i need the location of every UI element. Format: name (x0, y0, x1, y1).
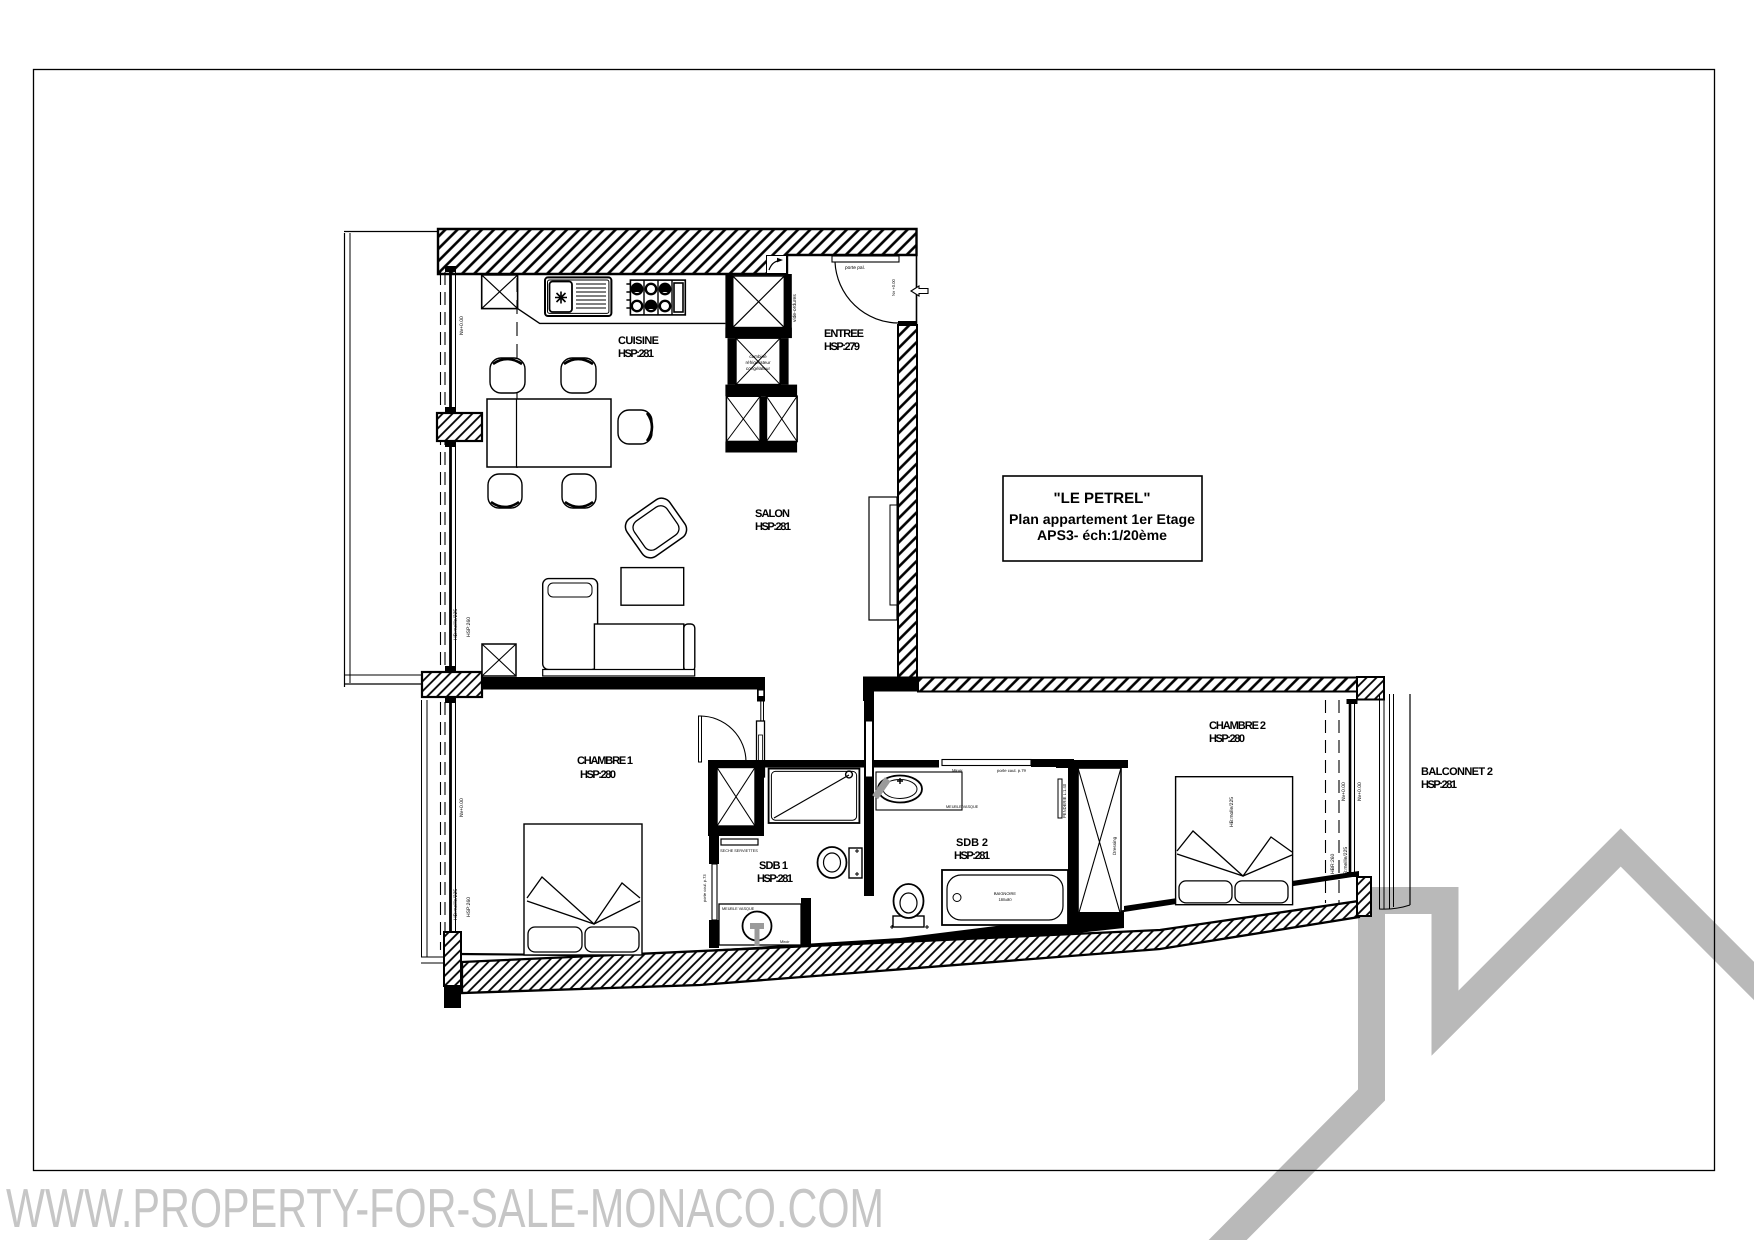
svg-text:Nv+0.00: Nv+0.00 (1357, 782, 1363, 801)
svg-text:SDB 2: SDB 2 (956, 837, 988, 849)
svg-text:Nv+0.00: Nv+0.00 (459, 316, 465, 335)
svg-text:HSP:280: HSP:280 (580, 769, 616, 781)
svg-text:ENTREE: ENTREE (824, 328, 864, 340)
svg-text:SALON: SALON (755, 508, 790, 520)
svg-text:porte pal.: porte pal. (845, 265, 865, 271)
svg-text:BALCONNET 2: BALCONNET 2 (1421, 766, 1493, 778)
svg-text:CUISINE: CUISINE (618, 335, 659, 347)
svg-text:HSP:281: HSP:281 (954, 850, 990, 862)
svg-text:HBR:260: HBR:260 (1330, 853, 1336, 874)
svg-text:PENDERIE L:1.40: PENDERIE L:1.40 (1062, 783, 1067, 818)
svg-text:HSP:281: HSP:281 (1421, 779, 1457, 791)
svg-text:HB:molle/225: HB:molle/225 (1229, 797, 1235, 827)
svg-text:porte coul. p.73: porte coul. p.73 (702, 874, 707, 902)
svg-text:"LE PETREL": "LE PETREL" (1054, 490, 1151, 507)
svg-text:Dressing: Dressing (1112, 836, 1117, 855)
svg-text:HB:meille/225: HB:meille/225 (453, 889, 459, 920)
svg-text:Nv +0.00: Nv +0.00 (891, 278, 896, 296)
svg-text:porte coul. p.79: porte coul. p.79 (997, 768, 1027, 773)
svg-text:WWW.PROPERTY-FOR-SALE-MONACO.C: WWW.PROPERTY-FOR-SALE-MONACO.COM (6, 1177, 884, 1239)
svg-text:Plan appartement 1er Etage: Plan appartement 1er Etage (1009, 511, 1195, 527)
svg-text:HSP:281: HSP:281 (757, 873, 793, 885)
svg-text:HSP:280: HSP:280 (1209, 733, 1245, 745)
svg-text:réfrigérateur: réfrigérateur (745, 360, 770, 365)
svg-text:SDB 1: SDB 1 (759, 860, 788, 872)
svg-text:HSP:281: HSP:281 (755, 521, 791, 533)
svg-text:MEUBLE VASQUE: MEUBLE VASQUE (946, 805, 979, 809)
svg-text:Miroir: Miroir (780, 940, 790, 944)
svg-text:Nv+0.00: Nv+0.00 (459, 798, 465, 817)
svg-text:vide-ordures: vide-ordures (792, 294, 798, 322)
svg-text:HSP:281: HSP:281 (618, 348, 654, 360)
svg-text:MEUBLE VASQUE: MEUBLE VASQUE (722, 907, 755, 911)
svg-text:HB:meille/225: HB:meille/225 (1343, 847, 1349, 878)
svg-text:CHAMBRE 1: CHAMBRE 1 (577, 755, 633, 767)
svg-text:180x80: 180x80 (998, 897, 1012, 902)
svg-text:combiné: combiné (749, 354, 767, 359)
svg-text:HSP:260: HSP:260 (466, 617, 472, 637)
svg-text:BAIGNOIRE: BAIGNOIRE (994, 891, 1017, 896)
svg-text:congélateur: congélateur (746, 366, 770, 371)
svg-text:CHAMBRE 2: CHAMBRE 2 (1209, 720, 1266, 732)
svg-text:SECHE SERVIETTES: SECHE SERVIETTES (720, 849, 758, 853)
svg-text:APS3- éch:1/20ème: APS3- éch:1/20ème (1037, 527, 1167, 543)
svg-text:HSP:279: HSP:279 (824, 341, 860, 353)
svg-text:Nv+0.00: Nv+0.00 (1341, 782, 1347, 801)
svg-text:HB:meille/225: HB:meille/225 (453, 609, 459, 640)
svg-text:HSP:260: HSP:260 (466, 897, 472, 917)
